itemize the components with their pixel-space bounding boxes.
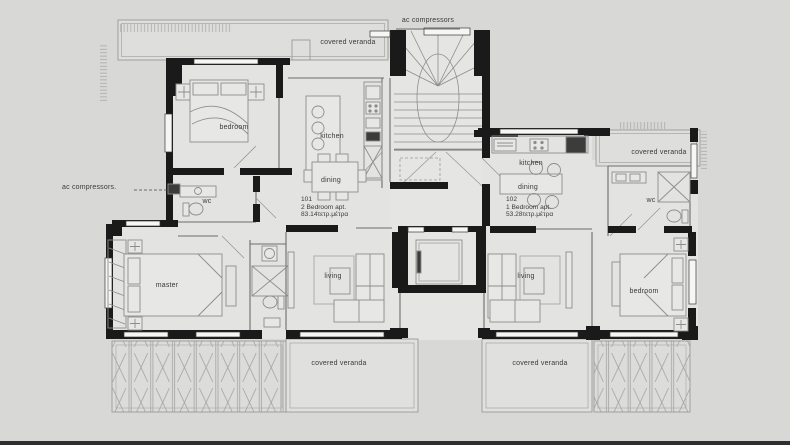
deck-right xyxy=(594,341,690,412)
kitchen-counter-102 xyxy=(492,136,588,153)
floor-plan-screenshot: ac compressors covered veranda bedroom k… xyxy=(0,0,790,445)
deck-left xyxy=(112,341,286,412)
bottom-edge-bar xyxy=(0,441,790,445)
floor-plan-drawing xyxy=(0,0,790,445)
